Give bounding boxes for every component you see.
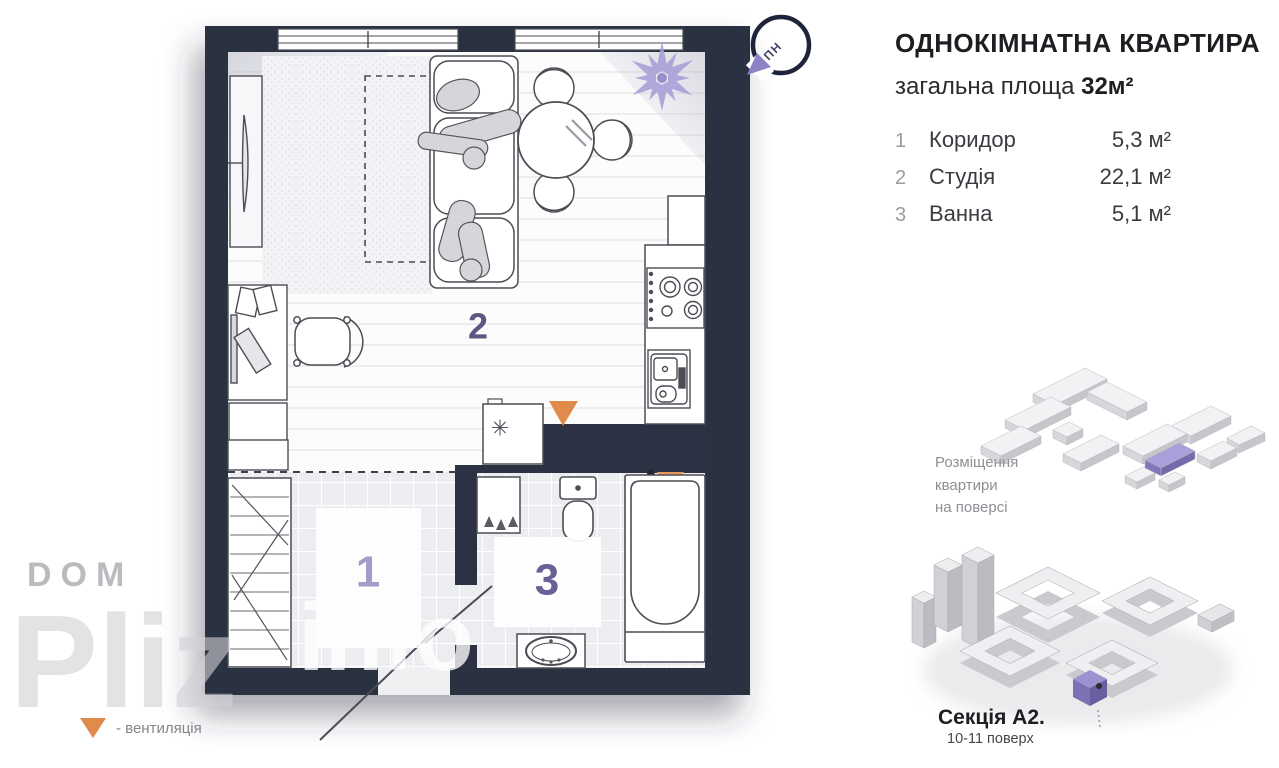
- dining-chair-icon: [592, 120, 632, 160]
- placement-label: Розміщення квартири на поверсі: [935, 452, 1018, 520]
- desk-icon: [228, 285, 287, 465]
- fridge-icon: ✳: [483, 399, 543, 464]
- room-row-num: 3: [895, 204, 929, 227]
- room-row-name: Студія: [929, 164, 1100, 190]
- dining-table-icon: [518, 102, 594, 178]
- room-list: 1 Коридор 5,3 м² 2 Студія 22,1 м² 3 Ванн…: [895, 127, 1171, 227]
- room-row: 3 Ванна 5,1 м²: [895, 201, 1171, 227]
- room-number-bathroom: 3: [535, 556, 559, 605]
- kitchen-stove-icon: [647, 268, 704, 328]
- toilet-icon: [560, 477, 596, 541]
- room-number-studio: 2: [468, 306, 488, 347]
- carpet: [262, 56, 432, 294]
- vent-triangle-icon: [80, 718, 106, 738]
- room-row: 2 Студія 22,1 м²: [895, 164, 1171, 190]
- washing-machine-icon: [477, 477, 520, 533]
- vent-legend: - вентиляція: [80, 718, 202, 738]
- room-row-name: Коридор: [929, 127, 1112, 153]
- watermark-info: info: [298, 588, 474, 689]
- floor-slab: [1053, 422, 1083, 445]
- page-title: ОДНОКІМНАТНА КВАРТИРА: [895, 28, 1265, 59]
- total-area-value: 32м²: [1081, 73, 1133, 100]
- room-row: 1 Коридор 5,3 м²: [895, 127, 1171, 153]
- room-row-area: 22,1 м²: [1100, 164, 1171, 190]
- room-row-name: Ванна: [929, 201, 1112, 227]
- bathtub-icon: [625, 475, 705, 662]
- apartment-flyer: ✳: [0, 0, 1279, 768]
- floors-label: 10-11 поверх: [947, 731, 1034, 747]
- floor-slab: [1197, 441, 1237, 469]
- vent-legend-label: - вентиляція: [116, 720, 202, 737]
- room-row-area: 5,1 м²: [1112, 201, 1171, 227]
- north-label: ПН: [761, 39, 785, 63]
- freezer-symbol: ✳: [491, 416, 509, 441]
- room-row-area: 5,3 м²: [1112, 127, 1171, 153]
- room-row-num: 1: [895, 130, 929, 153]
- subtitle-prefix: загальна площа: [895, 73, 1074, 100]
- section-label: Секція А2.: [938, 706, 1045, 730]
- info-panel: ОДНОКІМНАТНА КВАРТИРА загальна площа 32м…: [895, 28, 1265, 238]
- window-icon: [515, 29, 683, 50]
- floor-placement-diagram: [975, 362, 1275, 507]
- bathroom-sink-icon: [517, 634, 585, 668]
- room-row-num: 2: [895, 167, 929, 190]
- window-icon: [278, 29, 458, 50]
- total-area-line: загальна площа 32м²: [895, 73, 1265, 101]
- tv-icon: [228, 76, 262, 247]
- north-indicator: ПН: [746, 17, 809, 82]
- tower-buildings: [912, 547, 994, 648]
- kitchen-sink-icon: [648, 350, 690, 408]
- floor-slab: [1087, 382, 1147, 420]
